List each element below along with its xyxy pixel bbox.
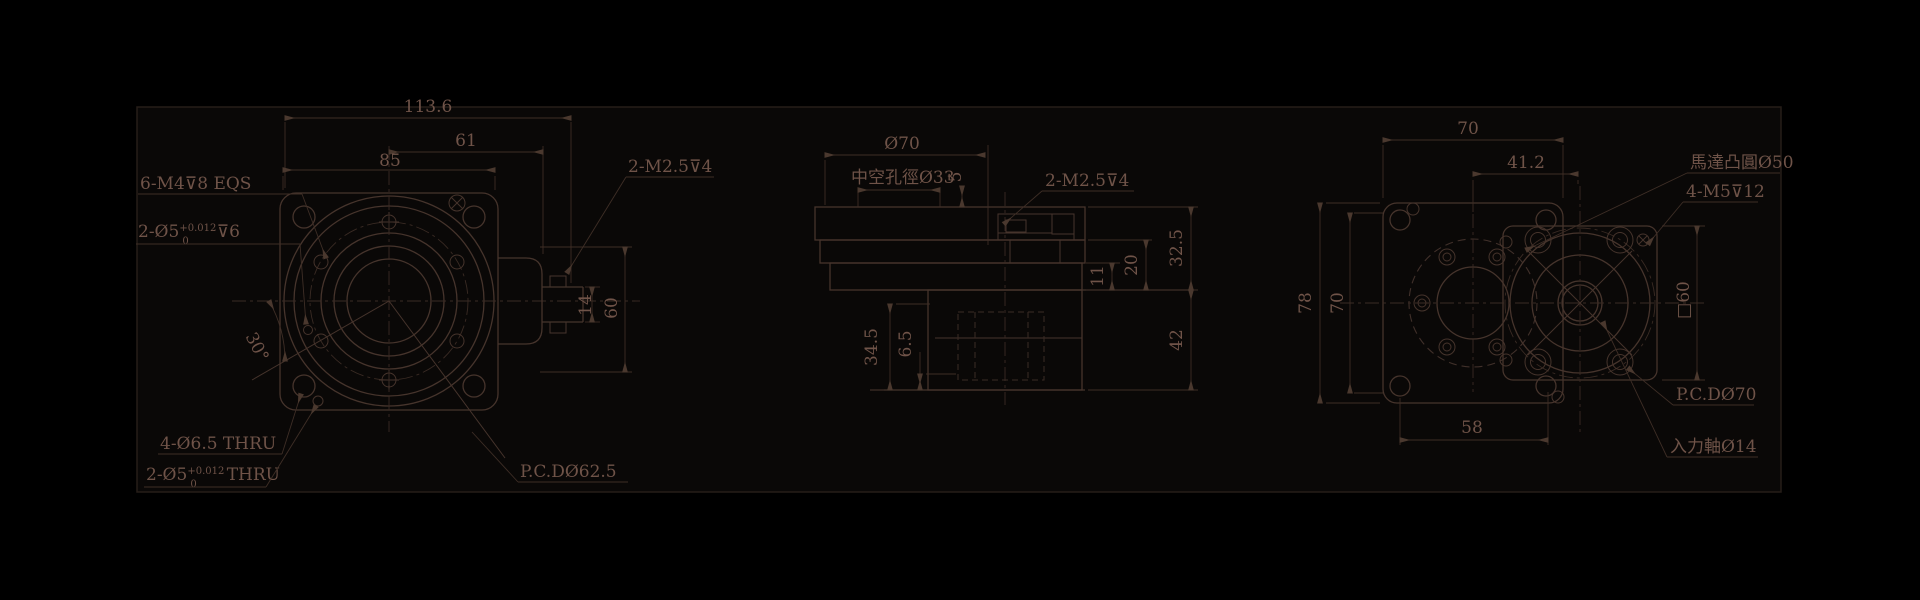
dim-flange: 85 — [379, 151, 401, 171]
dim-height: 78 — [1296, 292, 1316, 314]
dim-shaft: 14 — [576, 294, 596, 316]
dim-325: 32.5 — [1167, 229, 1187, 267]
dim-inner: 70 — [1328, 292, 1348, 314]
note-pcd: P.C.DØ62.5 — [520, 462, 617, 482]
dim-upper: 61 — [455, 131, 477, 151]
engineering-drawing: 30° 113.6 61 85 14 60 — [0, 0, 1920, 600]
note-boss: 馬達凸圓Ø50 — [1690, 153, 1794, 173]
dim-total: 113.6 — [404, 97, 453, 117]
dim-345: 34.5 — [862, 328, 882, 366]
dim-holes: 58 — [1461, 418, 1483, 438]
dim-step: 5 — [946, 172, 966, 183]
dim-11: 11 — [1088, 265, 1108, 287]
bore-label: 中空孔徑Ø33 — [851, 168, 955, 188]
note-shaft: 入力軸Ø14 — [1670, 437, 1757, 457]
dim-offset: 41.2 — [1507, 153, 1545, 173]
screenshot-stage: 30° 113.6 61 85 14 60 — [0, 0, 1920, 600]
dim-square: □60 — [1674, 281, 1694, 319]
dim-tab: 60 — [602, 297, 622, 319]
dim-od: Ø70 — [884, 134, 920, 154]
note-m5: 4-M5⊽12 — [1686, 182, 1765, 202]
note-m4: 6-M4⊽8 EQS — [140, 174, 251, 194]
dim-20: 20 — [1122, 254, 1142, 276]
note-m25: 2-M2.5⊽4 — [628, 157, 712, 177]
note-m25-mid: 2-M2.5⊽4 — [1045, 171, 1129, 191]
note-pcd70: P.C.DØ70 — [1676, 385, 1756, 405]
note-thru65: 4-Ø6.5 THRU — [160, 434, 276, 454]
dim-width: 70 — [1457, 119, 1479, 139]
dim-65: 6.5 — [896, 330, 916, 357]
dim-42: 42 — [1167, 329, 1187, 351]
